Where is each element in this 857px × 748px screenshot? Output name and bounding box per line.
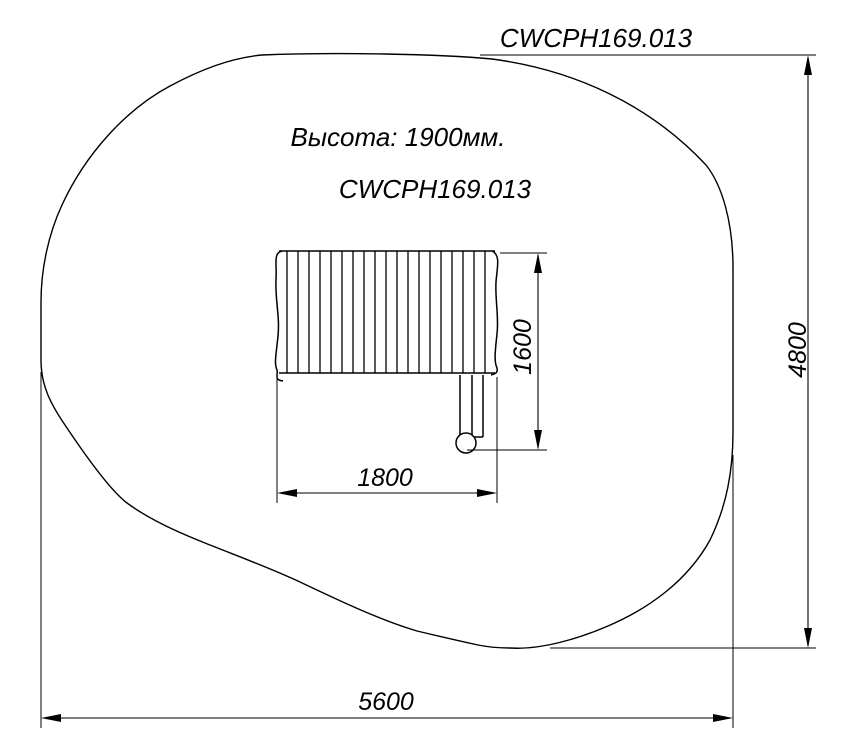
dimension-1800-label: 1800	[357, 464, 413, 492]
equipment-leg	[460, 375, 483, 437]
drawing-code-top: CWCPH169.013	[500, 23, 693, 53]
dimension-1600: 1600	[509, 253, 542, 450]
height-note: Высота: 1900мм.	[291, 122, 506, 152]
dimension-5600-label: 5600	[358, 688, 414, 716]
arrow-up-icon	[534, 253, 542, 273]
arrow-left-icon	[277, 489, 297, 497]
equipment-body	[275, 251, 497, 453]
arrow-up-icon	[804, 55, 812, 75]
dimension-1600-label: 1600	[509, 319, 537, 375]
arrow-down-icon	[804, 628, 812, 648]
extension-lines	[41, 55, 816, 728]
dimension-4800-label: 4800	[784, 322, 812, 378]
equipment-right-break-edge	[491, 251, 498, 375]
arrow-left-icon	[41, 714, 61, 722]
arrow-right-icon	[713, 714, 733, 722]
dimension-1800: 1800	[277, 464, 497, 497]
arrow-down-icon	[534, 430, 542, 450]
dimension-5600: 5600	[41, 688, 733, 722]
dimension-4800: 4800	[784, 55, 812, 648]
arrow-right-icon	[477, 489, 497, 497]
model-code: CWCPH169.013	[339, 174, 532, 204]
equipment-left-break-edge	[275, 251, 283, 381]
equipment-slats	[287, 251, 485, 373]
plan-view-drawing: 4800 5600 1600 1800 CWCPH169.013 Высота:…	[0, 0, 857, 748]
technical-drawing-canvas: 4800 5600 1600 1800 CWCPH169.013 Высота:…	[0, 0, 857, 748]
